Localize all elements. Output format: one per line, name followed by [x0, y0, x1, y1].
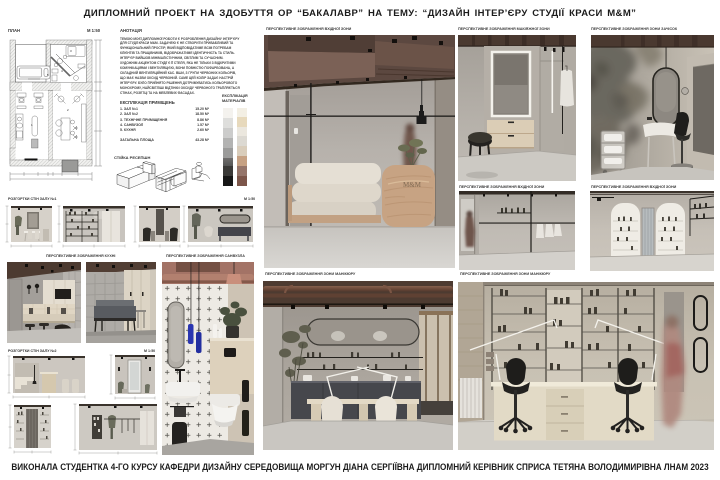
svg-text:M&M: M&M: [403, 181, 422, 189]
